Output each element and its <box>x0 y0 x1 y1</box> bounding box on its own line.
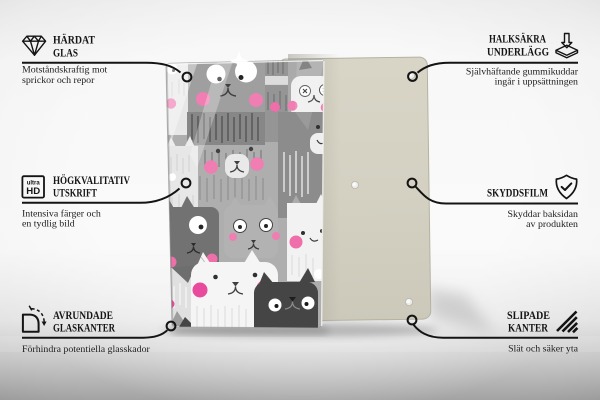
svg-text:av produkten: av produkten <box>526 219 578 230</box>
svg-text:ingår i uppsättningen: ingår i uppsättningen <box>495 77 578 88</box>
svg-text:GLASKANTER: GLASKANTER <box>53 321 115 335</box>
svg-text:HALKSÄKRA: HALKSÄKRA <box>489 32 546 46</box>
svg-text:UTSKRIFT: UTSKRIFT <box>53 186 97 200</box>
svg-text:en tydlig bild: en tydlig bild <box>22 219 75 230</box>
svg-text:GLAS: GLAS <box>53 46 78 60</box>
svg-text:Förhindra potentiella glasskad: Förhindra potentiella glasskador <box>22 344 151 355</box>
svg-text:SKYDDSFILM: SKYDDSFILM <box>487 186 548 200</box>
svg-text:HÄRDAT: HÄRDAT <box>53 33 95 47</box>
svg-text:KANTER: KANTER <box>508 321 548 335</box>
svg-text:HD: HD <box>26 186 40 197</box>
svg-text:sprickor och repor: sprickor och repor <box>22 75 95 86</box>
svg-text:Slät och säker yta: Slät och säker yta <box>508 344 579 355</box>
svg-text:UNDERLÄGG: UNDERLÄGG <box>487 45 549 59</box>
